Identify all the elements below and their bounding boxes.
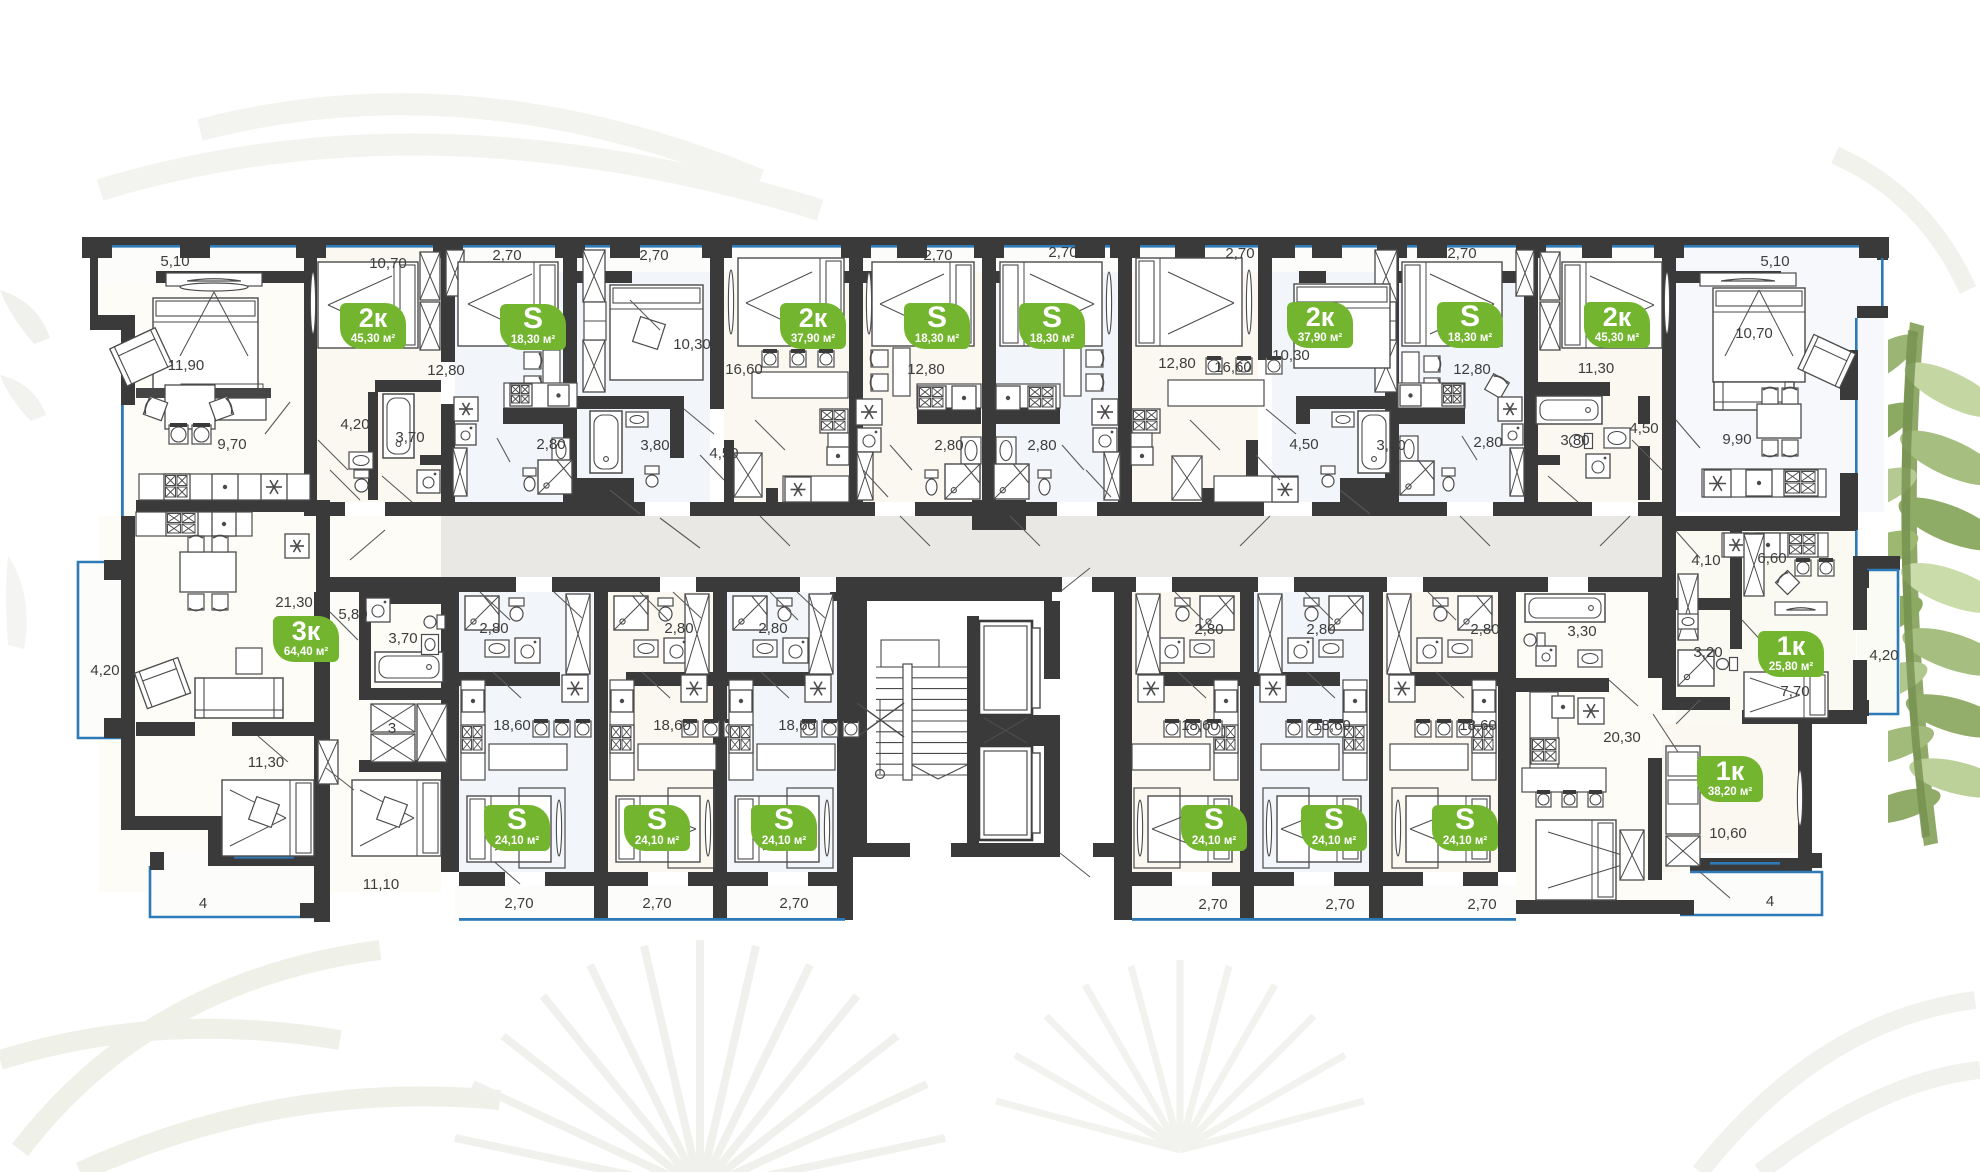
- svg-text:2к: 2к: [1306, 302, 1335, 332]
- svg-text:11,30: 11,30: [1578, 360, 1614, 377]
- svg-text:2к: 2к: [799, 303, 828, 333]
- svg-text:11,10: 11,10: [363, 876, 399, 893]
- svg-text:3,30: 3,30: [1567, 623, 1596, 640]
- svg-text:11,30: 11,30: [248, 754, 284, 771]
- svg-text:3,80: 3,80: [1376, 437, 1405, 454]
- svg-text:4,20: 4,20: [340, 416, 369, 433]
- svg-text:S: S: [647, 803, 667, 836]
- svg-text:24,10 м²: 24,10 м²: [1312, 835, 1356, 847]
- svg-text:2,80: 2,80: [1470, 621, 1499, 638]
- svg-text:10,30: 10,30: [673, 336, 711, 353]
- svg-text:S: S: [523, 302, 543, 335]
- svg-text:18,30 м²: 18,30 м²: [511, 334, 555, 346]
- svg-text:10,30: 10,30: [1272, 347, 1310, 364]
- svg-text:5,80: 5,80: [338, 606, 367, 623]
- svg-text:18,60: 18,60: [778, 717, 816, 734]
- svg-text:12,80: 12,80: [907, 361, 945, 378]
- svg-text:2,70: 2,70: [779, 895, 808, 912]
- svg-text:45,30 м²: 45,30 м²: [351, 333, 395, 345]
- svg-text:21,30: 21,30: [275, 594, 313, 611]
- svg-text:2,80: 2,80: [1473, 434, 1502, 451]
- svg-text:18,60: 18,60: [1313, 717, 1351, 734]
- svg-text:S: S: [1460, 300, 1480, 333]
- svg-text:S: S: [507, 803, 527, 836]
- svg-text:64,40 м²: 64,40 м²: [284, 646, 328, 658]
- svg-text:2,80: 2,80: [479, 620, 508, 637]
- svg-text:25,80 м²: 25,80 м²: [1769, 661, 1813, 673]
- svg-text:3,80: 3,80: [640, 437, 669, 454]
- svg-text:18,60: 18,60: [493, 717, 531, 734]
- svg-text:2,80: 2,80: [664, 620, 693, 637]
- svg-text:5,10: 5,10: [1760, 253, 1789, 270]
- svg-text:24,10 м²: 24,10 м²: [1192, 835, 1236, 847]
- svg-text:2,80: 2,80: [1306, 621, 1335, 638]
- svg-text:2,70: 2,70: [1325, 896, 1354, 913]
- svg-text:4,20: 4,20: [1869, 647, 1898, 664]
- svg-text:24,10 м²: 24,10 м²: [762, 835, 806, 847]
- svg-text:3,20: 3,20: [1693, 644, 1722, 661]
- svg-text:S: S: [1042, 301, 1062, 334]
- svg-text:2,70: 2,70: [1198, 896, 1227, 913]
- svg-text:18,60: 18,60: [1459, 717, 1497, 734]
- svg-text:9,70: 9,70: [217, 436, 246, 453]
- svg-text:18,30 м²: 18,30 м²: [1030, 333, 1074, 345]
- svg-text:4,20: 4,20: [90, 662, 119, 679]
- svg-text:2,70: 2,70: [639, 247, 668, 264]
- svg-text:2к: 2к: [359, 303, 388, 333]
- svg-text:16,60: 16,60: [1214, 359, 1252, 376]
- svg-text:24,10 м²: 24,10 м²: [1443, 835, 1487, 847]
- svg-text:10,60: 10,60: [1709, 825, 1747, 842]
- svg-text:2,70: 2,70: [642, 895, 671, 912]
- svg-text:2,70: 2,70: [1467, 896, 1496, 913]
- svg-text:2,80: 2,80: [1194, 621, 1223, 638]
- svg-text:6,60: 6,60: [1757, 550, 1786, 567]
- svg-text:18,60: 18,60: [653, 717, 691, 734]
- svg-text:2,70: 2,70: [1447, 245, 1476, 262]
- svg-text:1к: 1к: [1716, 756, 1745, 786]
- svg-text:38,20 м²: 38,20 м²: [1708, 786, 1752, 798]
- svg-text:1к: 1к: [1777, 631, 1806, 661]
- svg-text:7,70: 7,70: [1780, 683, 1809, 700]
- svg-text:4,50: 4,50: [709, 445, 738, 462]
- svg-text:4,50: 4,50: [1289, 436, 1318, 453]
- svg-text:12,80: 12,80: [1158, 355, 1196, 372]
- svg-text:4: 4: [1766, 893, 1774, 910]
- svg-text:37,90 м²: 37,90 м²: [791, 333, 835, 345]
- svg-text:24,10 м²: 24,10 м²: [635, 835, 679, 847]
- svg-text:S: S: [1455, 803, 1475, 836]
- svg-text:9,90: 9,90: [1722, 431, 1751, 448]
- svg-text:5,10: 5,10: [160, 253, 189, 270]
- svg-text:4,50: 4,50: [1629, 420, 1658, 437]
- svg-text:2,80: 2,80: [1027, 437, 1056, 454]
- svg-text:S: S: [1204, 803, 1224, 836]
- svg-text:2,70: 2,70: [923, 247, 952, 264]
- svg-text:20,30: 20,30: [1603, 729, 1641, 746]
- svg-text:18,30 м²: 18,30 м²: [915, 333, 959, 345]
- svg-text:3,70: 3,70: [395, 429, 424, 446]
- svg-text:18,60: 18,60: [1181, 717, 1219, 734]
- svg-text:10,70: 10,70: [369, 255, 407, 272]
- svg-text:2,70: 2,70: [504, 895, 533, 912]
- svg-text:2,80: 2,80: [934, 437, 963, 454]
- svg-text:4: 4: [199, 895, 207, 912]
- svg-text:37,90 м²: 37,90 м²: [1298, 332, 1342, 344]
- svg-text:S: S: [927, 301, 947, 334]
- svg-text:2,70: 2,70: [492, 247, 521, 264]
- svg-text:18,30 м²: 18,30 м²: [1448, 332, 1492, 344]
- svg-text:24,10 м²: 24,10 м²: [495, 835, 539, 847]
- svg-text:2,80: 2,80: [536, 436, 565, 453]
- svg-text:12,80: 12,80: [427, 362, 465, 379]
- svg-text:4,10: 4,10: [1691, 552, 1720, 569]
- svg-text:16,60: 16,60: [725, 361, 763, 378]
- svg-text:3к: 3к: [292, 616, 321, 646]
- svg-text:2,70: 2,70: [1225, 245, 1254, 262]
- svg-text:S: S: [774, 803, 794, 836]
- svg-text:12,80: 12,80: [1453, 361, 1491, 378]
- svg-text:2,80: 2,80: [758, 620, 787, 637]
- svg-text:45,30 м²: 45,30 м²: [1595, 332, 1639, 344]
- svg-text:3,80: 3,80: [1560, 432, 1589, 449]
- svg-text:11,90: 11,90: [168, 357, 204, 374]
- svg-text:2,70: 2,70: [1048, 244, 1077, 261]
- svg-text:3,70: 3,70: [388, 630, 417, 647]
- svg-text:S: S: [1324, 803, 1344, 836]
- svg-text:10,70: 10,70: [1735, 325, 1773, 342]
- svg-text:3: 3: [388, 720, 396, 737]
- svg-text:2к: 2к: [1603, 302, 1632, 332]
